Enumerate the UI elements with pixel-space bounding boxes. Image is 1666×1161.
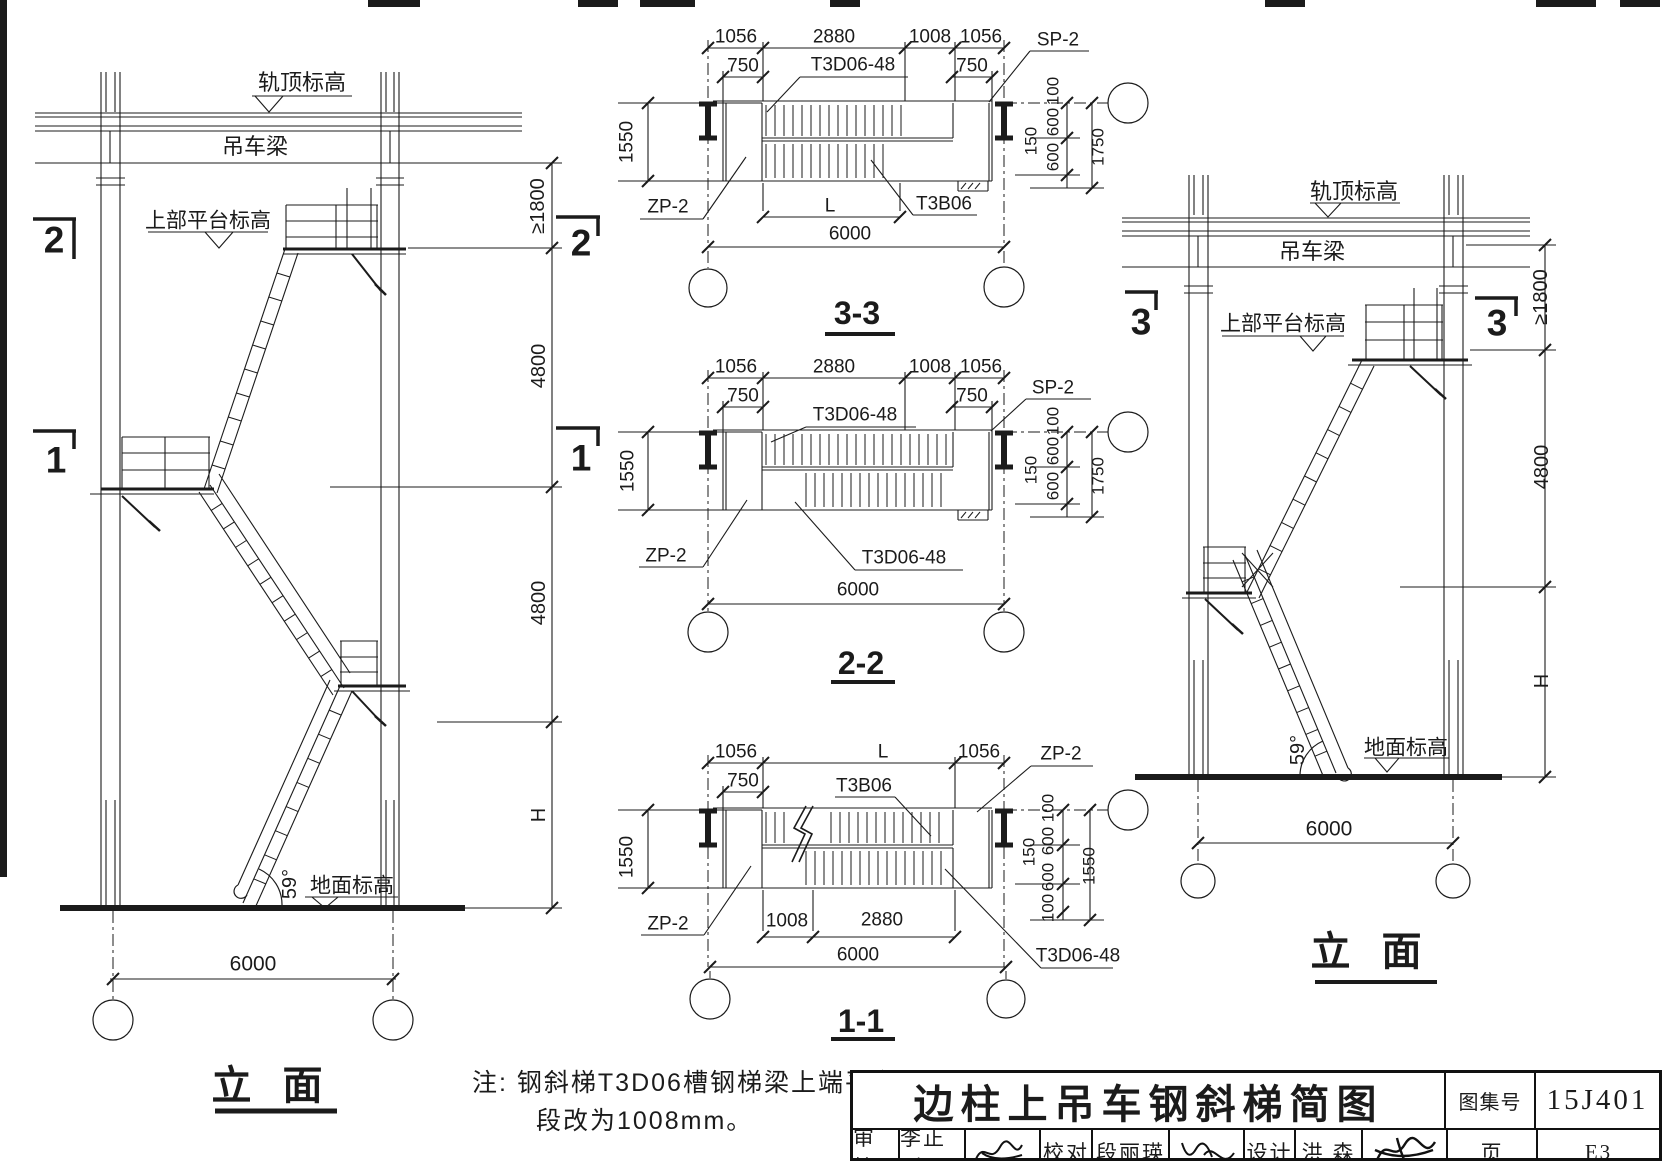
label-ZP-2: ZP-2 [645, 547, 686, 566]
label-SP-2: SP-2 [1032, 379, 1074, 398]
rail-top-elevation-label: 轨顶标高 [258, 72, 346, 94]
crane-beam-label: 吊车梁 [1279, 241, 1345, 263]
dim-1750: 1750 [1090, 457, 1107, 495]
right-elevation-title: 立 面 [1310, 932, 1431, 972]
label-ZP-2: ZP-2 [1040, 745, 1081, 764]
dim-600: 600 [1045, 472, 1062, 500]
dim-L: L [878, 743, 889, 762]
dim-1750: 1750 [1090, 128, 1107, 166]
angle-59deg: 59° [280, 869, 300, 899]
check-label: 校对 [1041, 1130, 1093, 1161]
label-T3D06-48: T3D06-48 [862, 549, 947, 568]
dim-1550: 1550 [619, 450, 638, 492]
section-mark-2-left: 2 [44, 222, 65, 259]
upper-platform-elevation-label: 上部平台标高 [1220, 314, 1346, 335]
dim-6000: 6000 [837, 946, 879, 965]
dim-4800: 4800 [529, 581, 549, 626]
dim-750: 750 [956, 57, 988, 76]
design-label: 设计 [1245, 1130, 1296, 1161]
dim-600: 600 [1045, 143, 1062, 171]
dim-1056: 1056 [715, 28, 757, 47]
annotation-layer: 轨顶标高吊车梁上部平台标高2211≥180048004800H59°地面标高60… [0, 0, 1666, 1161]
section-mark-1-right: 1 [571, 440, 592, 477]
ground-elevation-label: 地面标高 [310, 876, 394, 897]
dim-4800: 4800 [529, 344, 549, 389]
dim-ge1800: ≥1800 [528, 178, 548, 233]
label-ZP-2: ZP-2 [647, 915, 688, 934]
atlas-number-value: 15J401 [1536, 1073, 1659, 1128]
dim-100: 100 [1040, 894, 1057, 922]
page-label: 页 [1448, 1130, 1538, 1161]
review-label: 审核 [853, 1130, 900, 1161]
dim-6000: 6000 [230, 954, 277, 975]
dim-L: L [825, 197, 836, 216]
designer-signature [1363, 1130, 1448, 1161]
dim-ge1800: ≥1800 [1531, 269, 1551, 324]
drawing-sheet: { "page": {"background": "#ffffff", "ink… [0, 0, 1666, 1161]
dim-1056: 1056 [715, 743, 757, 762]
section-mark-2-right: 2 [571, 225, 592, 262]
upper-platform-elevation-label: 上部平台标高 [145, 211, 271, 232]
drawing-note: 注: 钢斜梯T3D06槽钢梯梁上端平台 段改为1008mm。 [472, 1064, 899, 1140]
label-T3D06-48: T3D06-48 [813, 406, 898, 425]
label-ZP-2: ZP-2 [647, 198, 688, 217]
dim-6000: 6000 [837, 581, 879, 600]
note-text-1: 钢斜梯T3D06槽钢梯梁上端平台 [517, 1069, 899, 1097]
dim-600: 600 [1045, 108, 1062, 136]
dim-H: H [1532, 674, 1552, 688]
dim-1056: 1056 [960, 358, 1002, 377]
dim-750: 750 [727, 772, 759, 791]
signature-icon [970, 1135, 1036, 1161]
dim-2880: 2880 [813, 358, 855, 377]
dim-750: 750 [727, 57, 759, 76]
dim-750: 750 [956, 387, 988, 406]
page-number: E3 [1538, 1130, 1659, 1161]
reviewer-name: 李正刚 [900, 1130, 966, 1161]
dim-1008: 1008 [909, 358, 951, 377]
label-T3B06: T3B06 [836, 777, 892, 796]
signature-icon [1367, 1134, 1443, 1161]
signature-icon [1174, 1135, 1240, 1161]
dim-1550: 1550 [1081, 847, 1098, 885]
dim-1008: 1008 [909, 28, 951, 47]
dim-4800: 4800 [1532, 445, 1552, 490]
atlas-number-label: 图集号 [1446, 1073, 1536, 1128]
section-1-1-title: 1-1 [838, 1005, 884, 1037]
section-2-2-title: 2-2 [838, 647, 884, 679]
dim-1056: 1056 [958, 743, 1000, 762]
section-mark-3-right: 3 [1487, 305, 1508, 342]
note-line-1: 注: 钢斜梯T3D06槽钢梯梁上端平台 [472, 1064, 899, 1102]
dim-750: 750 [727, 387, 759, 406]
dim-1056: 1056 [960, 28, 1002, 47]
reviewer-signature [966, 1130, 1041, 1161]
dim-2880: 2880 [813, 28, 855, 47]
checker-name: 段丽瑛 [1093, 1130, 1170, 1161]
dim-100: 100 [1045, 407, 1062, 435]
crane-beam-label: 吊车梁 [222, 136, 288, 158]
dim-6000: 6000 [1306, 819, 1353, 840]
angle-59deg: 59° [1288, 735, 1308, 765]
dim-600: 600 [1040, 827, 1057, 855]
dim-6000: 6000 [829, 225, 871, 244]
dim-600: 600 [1045, 437, 1062, 465]
label-T3B06: T3B06 [916, 195, 972, 214]
title-block-sign-row: 审核 李正刚 校对 段丽瑛 设计 洪 森 页 E3 [853, 1130, 1659, 1161]
dim-H: H [529, 808, 549, 822]
dim-1550: 1550 [618, 121, 637, 163]
ground-elevation-label: 地面标高 [1364, 738, 1448, 759]
dim-1056: 1056 [715, 358, 757, 377]
title-block: 边柱上吊车钢斜梯简图 图集号 15J401 审核 李正刚 校对 段丽瑛 设计 洪… [850, 1070, 1662, 1161]
dim-2880: 2880 [861, 911, 903, 930]
note-prefix: 注: [472, 1069, 508, 1097]
section-mark-1-left: 1 [46, 442, 67, 479]
designer-name: 洪 森 [1296, 1130, 1363, 1161]
dim-150: 150 [1023, 127, 1040, 155]
dim-1008: 1008 [766, 912, 808, 931]
label-T3D06-48: T3D06-48 [1036, 947, 1121, 966]
dim-150: 150 [1023, 456, 1040, 484]
section-3-3-title: 3-3 [834, 297, 880, 329]
dim-1550: 1550 [618, 836, 637, 878]
dim-100: 100 [1040, 794, 1057, 822]
title-block-main-row: 边柱上吊车钢斜梯简图 图集号 15J401 [853, 1073, 1659, 1130]
section-mark-3-left: 3 [1131, 304, 1152, 341]
rail-top-elevation-label: 轨顶标高 [1310, 181, 1398, 203]
left-elevation-title: 立 面 [211, 1066, 332, 1106]
note-line-2: 段改为1008mm。 [472, 1102, 899, 1140]
label-T3D06-48: T3D06-48 [811, 56, 896, 75]
dim-600: 600 [1040, 863, 1057, 891]
label-SP-2: SP-2 [1037, 31, 1079, 50]
dim-100: 100 [1045, 77, 1062, 105]
checker-signature [1170, 1130, 1245, 1161]
dim-150: 150 [1021, 838, 1038, 866]
drawing-title: 边柱上吊车钢斜梯简图 [853, 1073, 1446, 1128]
